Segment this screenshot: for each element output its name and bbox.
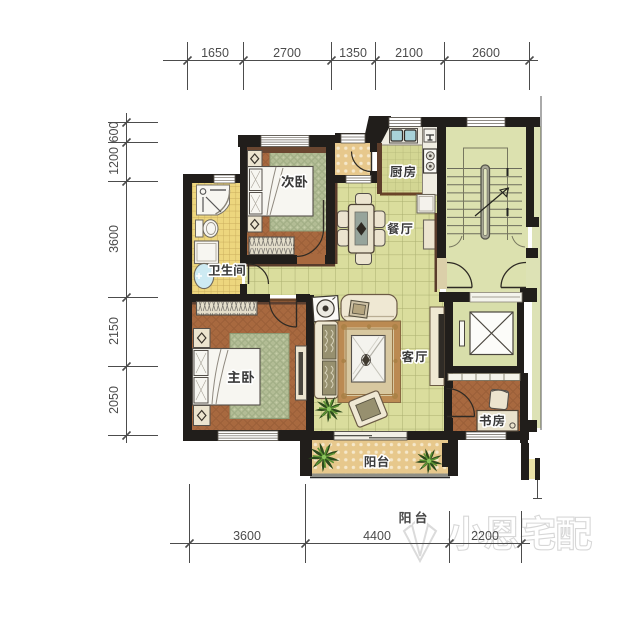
svg-text:1200: 1200 — [107, 147, 121, 175]
svg-text:1350: 1350 — [339, 46, 367, 60]
svg-text:2050: 2050 — [107, 386, 121, 414]
svg-text:3600: 3600 — [107, 225, 121, 253]
svg-text:2600: 2600 — [472, 46, 500, 60]
svg-text:2150: 2150 — [107, 317, 121, 345]
svg-text:600: 600 — [107, 122, 121, 143]
svg-text:2100: 2100 — [395, 46, 423, 60]
svg-text:3600: 3600 — [233, 529, 261, 543]
svg-text:1650: 1650 — [201, 46, 229, 60]
svg-text:2700: 2700 — [273, 46, 301, 60]
svg-text:4400: 4400 — [363, 529, 391, 543]
svg-text:2200: 2200 — [471, 529, 499, 543]
